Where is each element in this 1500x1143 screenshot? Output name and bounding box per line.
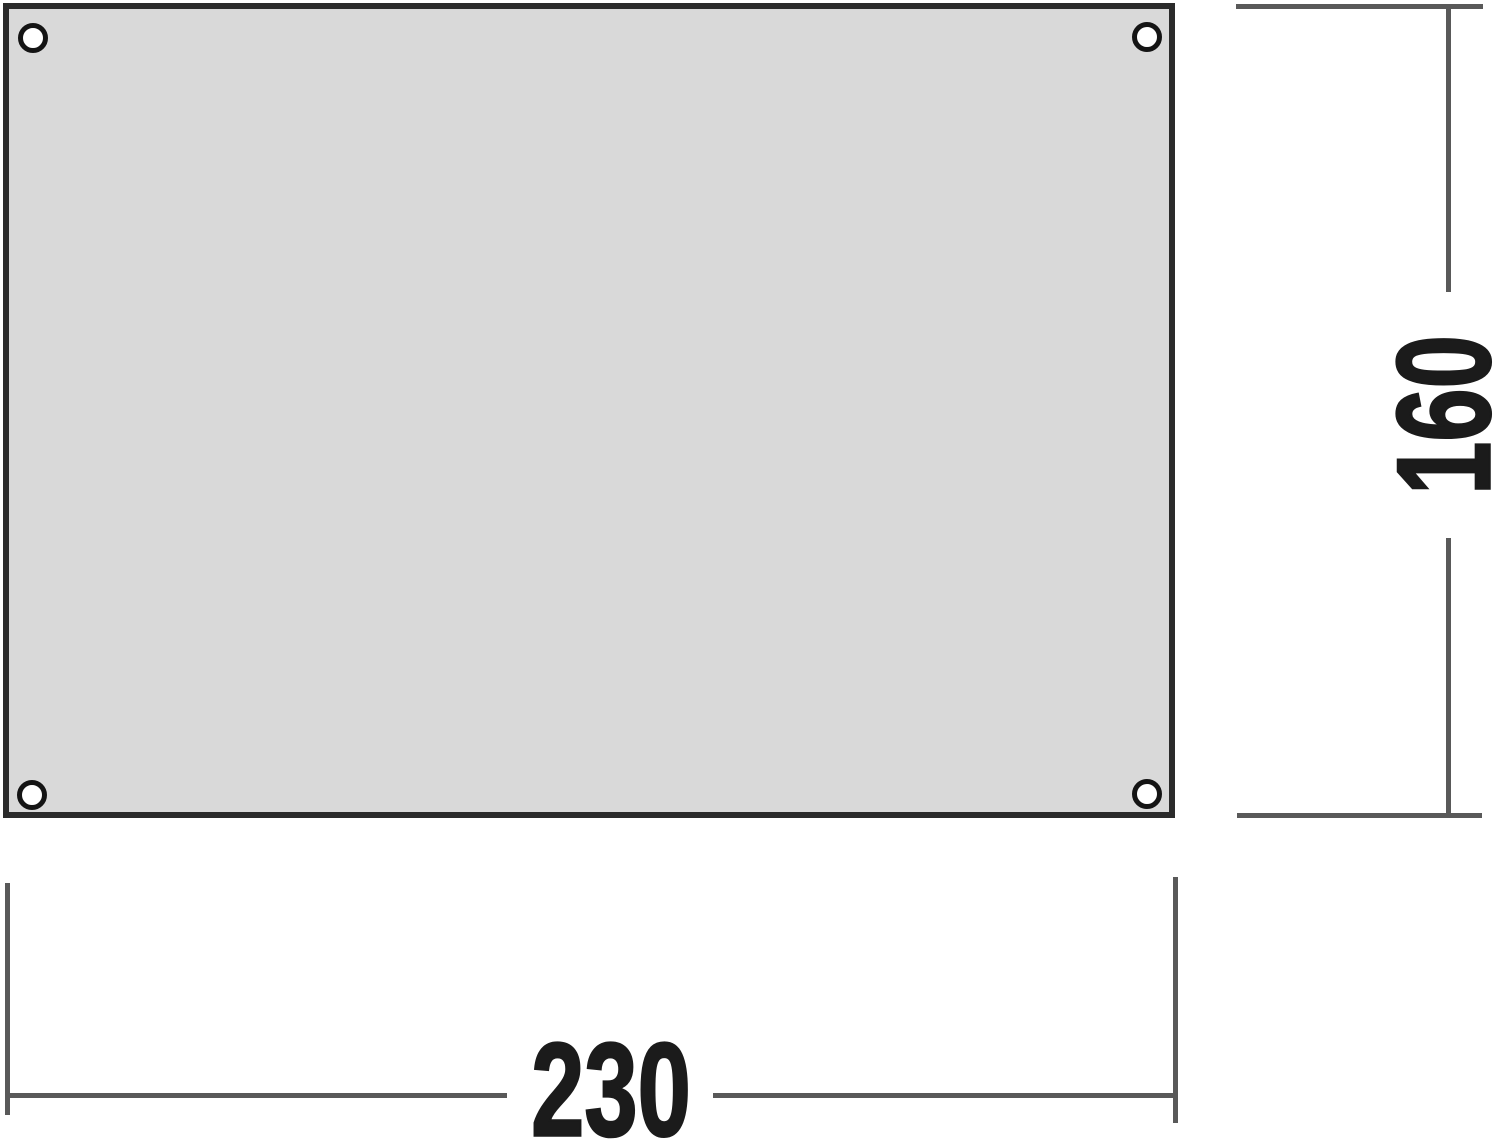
width-extension-line-right [1173, 877, 1178, 1123]
grommet-icon [1132, 779, 1162, 809]
height-dimension-line-upper [1446, 6, 1451, 292]
width-dimension-line-left [7, 1093, 507, 1098]
dimension-diagram: 160 230 [0, 0, 1500, 1143]
grommet-icon [17, 780, 47, 810]
grommet-icon [1132, 22, 1162, 52]
grommet-icon [18, 23, 48, 53]
height-dimension-label: 160 [1379, 335, 1500, 495]
width-dimension-line-right [713, 1093, 1175, 1098]
width-dimension-label: 230 [531, 1025, 691, 1143]
groundsheet-rectangle [3, 3, 1175, 818]
height-dimension-line-lower [1446, 538, 1451, 816]
width-extension-line-left [5, 883, 10, 1115]
